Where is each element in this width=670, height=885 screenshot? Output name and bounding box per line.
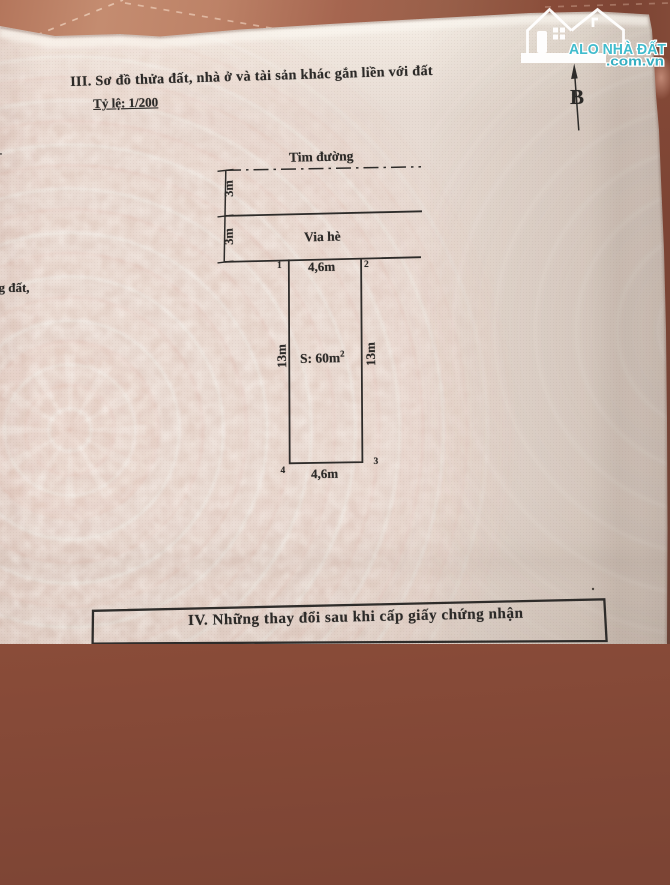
svg-text:.com.vn: .com.vn bbox=[606, 54, 664, 69]
